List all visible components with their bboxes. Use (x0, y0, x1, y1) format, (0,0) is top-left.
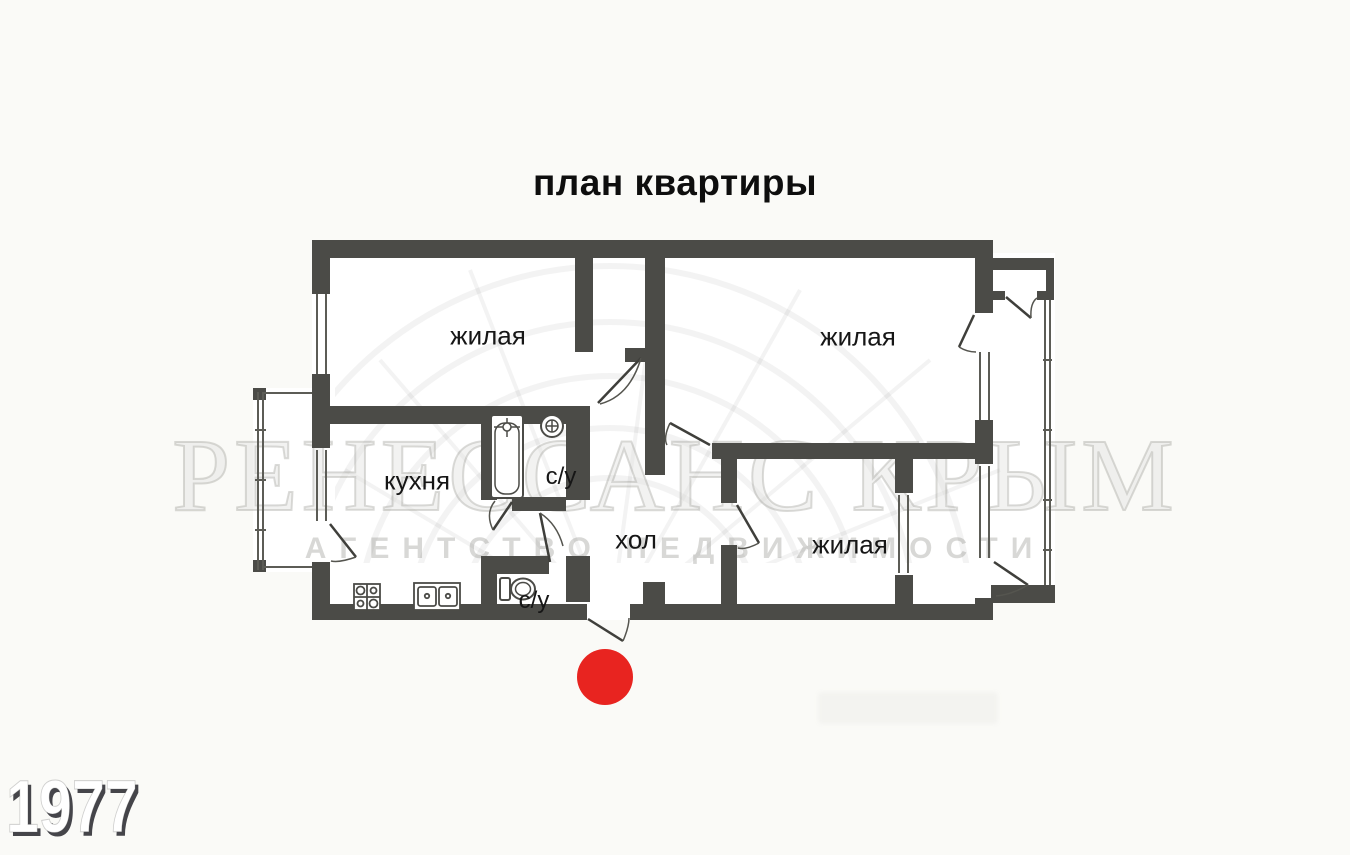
bathtub-icon (491, 415, 523, 498)
room-label-bedroom-top-left: жилая (450, 321, 526, 352)
room-label-bathroom: с/у (546, 463, 577, 491)
door-kitchen-balcony (330, 524, 356, 562)
door-balcony-top (959, 297, 1037, 352)
door-bedroom-bottom-right (737, 505, 759, 548)
room-label-kitchen: кухня (384, 466, 450, 497)
room-label-bedroom-bottom-right: жилая (812, 530, 888, 561)
balcony-right (1043, 300, 1052, 585)
door-bathroom (489, 501, 512, 530)
door-entrance (588, 618, 629, 641)
floor-plan-page: { "title": "план квартиры", "year_badge"… (0, 0, 1350, 855)
stove-icon (354, 584, 380, 610)
red-location-dot (577, 649, 633, 705)
bathroom-sink-icon (541, 415, 563, 437)
kitchen-sink-icon (414, 583, 460, 610)
door-bedroom-top-right (666, 423, 710, 445)
room-label-bedroom-top-right: жилая (820, 322, 896, 353)
year-badge: 1977 (6, 770, 138, 844)
fixtures (354, 415, 563, 610)
room-label-hall: хол (615, 525, 657, 556)
page-title: план квартиры (0, 162, 1350, 204)
door-bedroom-top-left (598, 358, 641, 404)
balcony-left (255, 392, 312, 570)
room-label-wc: с/у (519, 587, 550, 615)
walls (253, 240, 1055, 620)
floor-plan-drawing (0, 0, 1350, 855)
door-wc (540, 513, 563, 562)
